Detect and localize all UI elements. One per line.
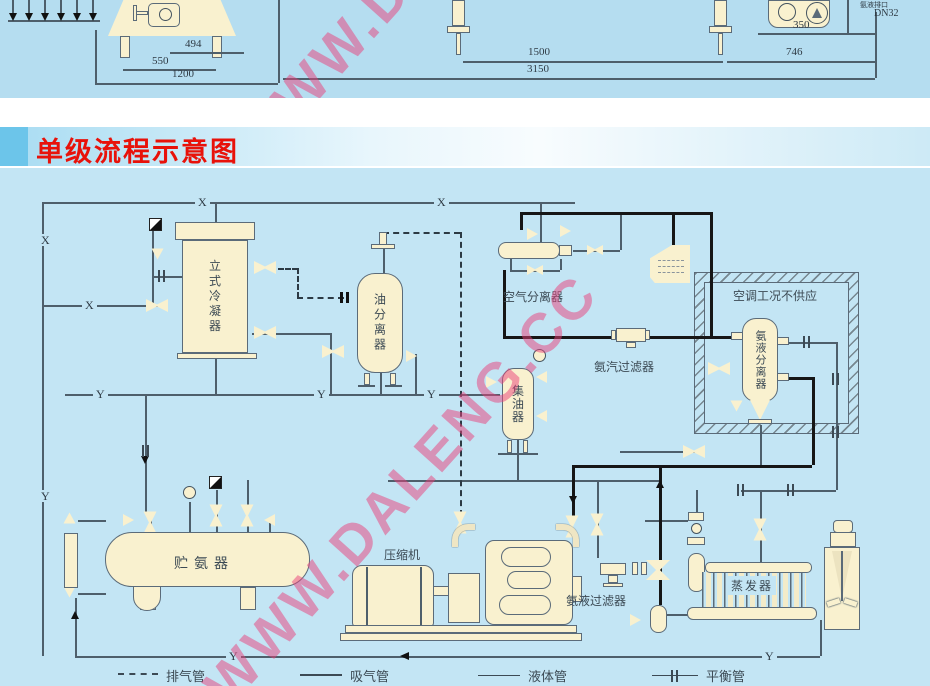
tank-liquid-line [658,260,684,261]
watermark: WWW.DALENG.CC [221,0,641,98]
condenser-label: 立式冷凝器 [207,259,224,334]
dim-line [123,69,216,71]
flow-arrow-icon [141,456,149,464]
valve-icon [587,245,603,255]
compressor-block [448,573,480,623]
port-size: DN32 [874,8,898,19]
legend-label-liquid: 液体管 [528,666,567,685]
title-accent-square [0,127,28,166]
union-fitting-icon [832,373,839,385]
pipe [696,490,698,512]
receiver-drain-pot [133,583,161,611]
pipe-tag-x: X [82,299,97,311]
pipe [645,520,688,522]
drawing-line [60,0,62,14]
open-tank [650,245,690,283]
thick-pipe [672,212,675,245]
pipe [510,259,512,270]
pipe-tag-y: Y [38,490,53,502]
dim-ext [875,12,877,78]
pipe [42,202,44,656]
pipe [415,354,417,394]
arrow-icon [73,13,81,21]
condenser-bottom-flange [177,353,257,359]
drawing-line [28,0,30,14]
union-fitting-icon [142,445,149,457]
condenser-top-cap [175,222,255,240]
pipe [152,231,154,305]
valve-icon [241,505,254,527]
valve-icon [322,345,344,358]
flow-diagram: 立式冷凝器 油分离器 空气分离器 空调工况不供应 氨液分离器 [0,168,930,686]
vessel-foot [498,453,538,455]
evaporator-bottom-header [687,607,817,620]
pipe [517,440,519,480]
page-title: 单级流程示意图 [36,130,239,169]
thick-pipe [812,377,815,465]
pipe [152,276,183,278]
liquid-filter-label: 氨液过滤器 [566,592,626,609]
vessel-leg [364,373,370,385]
dim-line [758,33,876,35]
pipe [189,502,191,532]
pipe [330,333,332,394]
dim-1200: 1200 [172,68,194,80]
level-controller-icon [149,218,162,231]
union-fitting-icon [832,426,839,438]
flange [641,562,647,575]
evaporator-label: 蒸发器 [728,576,776,595]
union-fitting-icon [737,484,744,496]
compressor-port [499,595,551,615]
valve-icon [683,445,705,458]
flange-tick [340,292,343,303]
oil-separator-vessel: 油分离器 [357,273,403,373]
flow-arrow-icon [400,652,409,660]
condenser-vessel: 立式冷凝器 [182,240,248,353]
pipe [665,614,689,616]
pipe-tag-y: Y [762,650,777,662]
arrow-icon [57,13,65,21]
pipe [760,425,762,465]
liquid-filter-base [603,583,623,587]
vapor-filter-body [616,328,646,342]
vapor-filter-stem [626,342,636,348]
dim-line [727,61,875,63]
angle-valve-icon [64,513,76,524]
tank-liquid-line [658,272,684,273]
drawing-line [76,0,78,14]
legend-symbol-discharge [118,673,158,675]
liquid-filter-stem [608,575,618,583]
vapor-filter-wing [611,330,616,340]
float-valve-flange [687,537,705,545]
arrow-icon [25,13,33,21]
thick-pipe [520,212,710,215]
valve-icon [646,560,670,580]
pipe [836,342,838,490]
vapor-filter-wing [645,330,650,340]
dim-line [170,52,244,54]
valve-icon [254,326,276,339]
machine-leg [120,36,130,58]
pipe [78,520,106,522]
thick-pipe [787,377,812,380]
pipe [787,342,836,344]
liquid-separator-label: 氨液分离器 [752,330,768,390]
compressor-base [340,633,582,641]
vapor-filter-label: 氨汽过滤器 [594,358,654,375]
dim-ext [847,0,849,33]
vessel-leg [452,0,465,26]
evaporator-top-header [705,562,812,573]
dimension-drawing-strip: 494 550 1200 350 1500 746 3150 氨液排口 DN32 [0,0,930,98]
valve-icon [527,265,543,275]
pipe-tag-y: Y [424,388,439,400]
pipe-tag-x: X [195,196,210,208]
drawing-line [44,0,46,14]
legend-tick-icon [671,670,678,682]
pipe-tag-y: Y [93,388,108,400]
arrow-icon [41,13,49,21]
legend-symbol-liquid [478,675,520,676]
liquid-pot [650,605,667,633]
thick-pipe [572,465,812,468]
suction-elbow [556,524,579,547]
union-fitting-icon [158,270,165,282]
compressor-port [501,547,551,567]
dim-494: 494 [185,38,202,50]
valve-icon [144,512,157,534]
page: 494 550 1200 350 1500 746 3150 氨液排口 DN32 [0,0,930,686]
machine-leg [212,36,222,58]
vessel-leg [714,0,727,26]
angle-valve-icon [64,587,76,598]
arrow-icon [9,13,17,21]
arrow-icon [89,13,97,21]
pipe [269,523,271,532]
thick-pipe [710,212,713,336]
valve-icon [254,261,276,274]
ac-note-label: 空调工况不供应 [733,287,817,304]
dim-line [283,78,875,80]
vessel-foot [447,26,470,33]
pipe-tag-x: X [434,196,449,208]
pipe [620,212,622,250]
pipe [42,202,575,204]
legend-label-suction: 吸气管 [350,666,389,685]
vessel-leg [390,373,396,385]
air-separator-vessel [498,242,560,259]
machine-handle [136,11,148,15]
pipe [75,656,820,658]
drawing-line [12,0,14,14]
level-gauge-column [64,533,78,588]
liquid-filter-body [600,563,626,575]
pipe [75,598,77,656]
section-title-bar: 单级流程示意图 [0,127,930,166]
valve-icon [754,519,767,541]
compressor-base [345,625,577,633]
separator-nozzle [777,337,789,345]
liquid-separator-vessel: 氨液分离器 [742,318,778,402]
angle-valve-icon [560,225,571,237]
vessel-stem [456,33,461,55]
machine-handle [133,5,137,21]
flow-arrow-icon [71,611,79,619]
dashed-pipe [383,232,460,234]
pipe [215,357,217,394]
tank-liquid-line [658,266,684,267]
vessel-leg [507,440,512,453]
discharge-elbow [452,524,475,547]
separator-nozzle [777,373,789,381]
dim-3150: 3150 [527,63,549,75]
dim-ext [95,30,97,83]
valve-icon [591,514,604,536]
receiver-label: 贮氨器 [174,553,234,573]
separator-base [748,419,772,424]
angle-valve-icon [527,228,538,240]
union-fitting-icon [803,336,810,348]
float-ball-icon [691,523,702,534]
flow-arrow-icon [656,480,664,488]
pipe-tag-y: Y [314,388,329,400]
agitator-motor [830,532,856,547]
dim-550: 550 [152,55,169,67]
pipe-tag-x: X [38,234,53,246]
dim-line [463,61,723,63]
float-valve-cap [688,512,704,521]
angle-valve-icon [536,410,547,422]
legend-label-balance: 平衡管 [706,666,745,685]
oil-separator-label: 油分离器 [372,293,389,353]
dashed-pipe [297,297,344,299]
pipe [540,202,542,242]
pipe [383,246,385,273]
legend-symbol-suction [300,674,342,676]
vessel-foot [709,26,732,33]
drawing-line [8,20,100,22]
flow-arrow-icon [569,496,577,504]
flange-tick [346,292,349,303]
air-separator-nose [559,245,572,256]
thick-pipe [572,465,575,520]
angle-valve-icon [630,614,641,626]
thick-pipe [520,212,523,230]
agitator-shaft [841,551,843,601]
dim-line [95,83,278,85]
dashed-pipe [297,268,299,298]
dim-1500: 1500 [528,46,550,58]
dashed-pipe [278,268,298,270]
vessel-foot [358,385,375,387]
vessel-leg [523,440,528,453]
drawing-line [92,0,94,14]
dim-350: 350 [793,19,810,31]
pipe [78,593,106,595]
vessel-stem [718,33,723,55]
valve-icon [210,505,223,527]
flange [632,562,638,575]
angle-valve-icon [123,514,134,526]
union-fitting-icon [787,484,794,496]
compressor-port [507,571,551,589]
oil-separator-cap [371,244,395,249]
pressure-gauge-icon [183,486,196,499]
pipe [820,620,822,656]
level-controller-icon [209,476,222,489]
motor-seam [420,567,422,625]
valve-icon [146,299,168,312]
dim-746: 746 [786,46,803,58]
compressor-coupling [433,586,449,596]
vessel-foot [385,385,402,387]
pipe [380,373,382,394]
pipe [215,202,217,222]
machine-circle [159,8,172,21]
